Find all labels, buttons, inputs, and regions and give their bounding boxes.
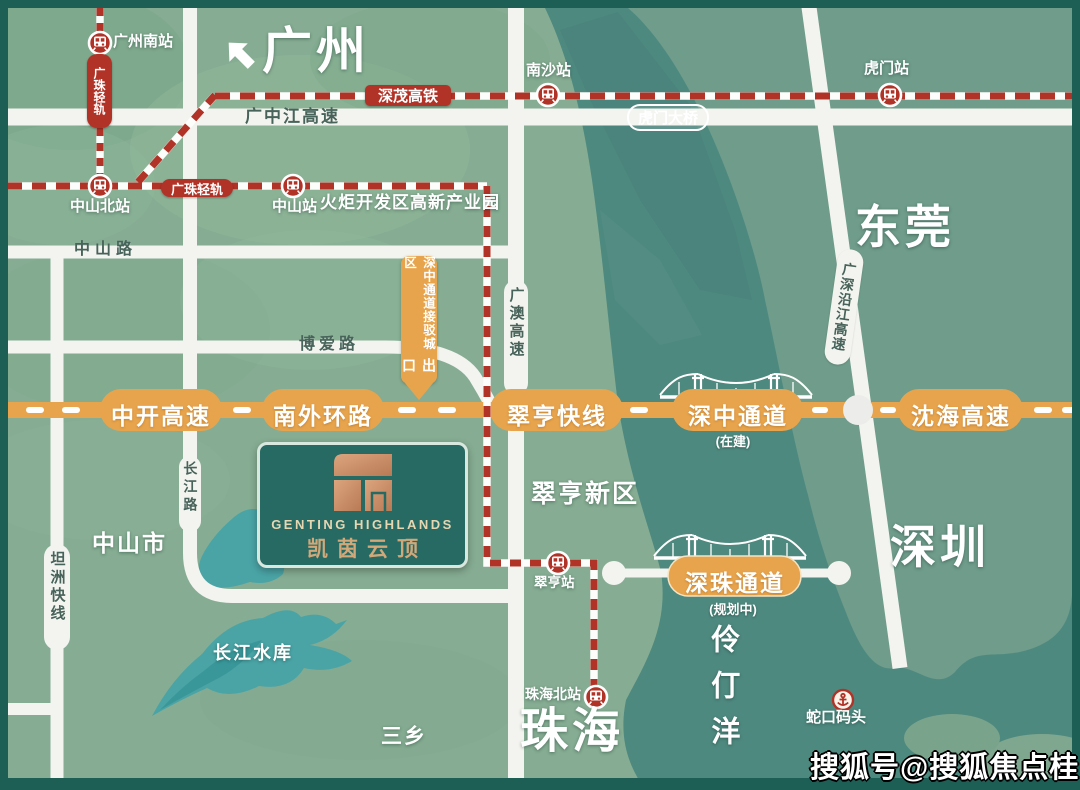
city-label-zhuhai: 珠海 bbox=[520, 706, 624, 759]
station-label-humen: 虎门站 bbox=[864, 61, 909, 78]
shenzhong-exit-banner: 深中通道接驳城区 出口 bbox=[401, 256, 437, 384]
city-label-guangzhou: 广州 bbox=[262, 24, 370, 79]
bar-label-shenzhong-corridor: 深中通道 bbox=[676, 397, 800, 431]
station-label-nansha: 南沙站 bbox=[526, 63, 571, 80]
station-icon-zhongshan-north bbox=[89, 175, 111, 197]
station-icon-zhongshan bbox=[282, 175, 304, 197]
status-shenzhu-planned: (规划中) bbox=[696, 599, 770, 618]
port-label-shekou: 蛇口码头 bbox=[806, 710, 866, 727]
genting-logo-icon bbox=[334, 454, 392, 512]
town-label-sanxiang: 三乡 bbox=[381, 725, 427, 748]
station-label-zhuhai-north: 珠海北站 bbox=[525, 687, 581, 702]
bar-label-zhongkai: 中开高速 bbox=[104, 397, 218, 431]
rail-badge-guangzhu-light-rail-vertical: 广珠轻轨 bbox=[87, 54, 112, 128]
bar-label-shenzhu-corridor: 深珠通道 bbox=[672, 564, 798, 598]
road-label-guangzhongjiang: 广中江高速 bbox=[245, 108, 340, 127]
exit-banner-text: 深中通道接驳城区 bbox=[400, 256, 438, 356]
anchor-icon bbox=[833, 690, 853, 710]
project-name-en: GENTING HIGHLANDS bbox=[271, 517, 454, 532]
transit-location-map: 广州 东莞 深圳 珠海 中山市 三乡 翠亨新区 伶仃洋 火炬开发区高新产业园 长… bbox=[0, 0, 1080, 790]
road-label-tanzhou-express: 坦洲快线 bbox=[48, 551, 65, 623]
station-label-guangzhou-south: 广州南站 bbox=[113, 34, 173, 51]
status-shenzhong-under-construction: (在建) bbox=[703, 431, 763, 450]
watermark: 搜狐号@搜狐焦点桂林站 bbox=[810, 744, 1080, 790]
map-canvas bbox=[0, 0, 1080, 790]
city-label-zhongshan: 中山市 bbox=[92, 531, 167, 556]
bar-label-shenhai: 沈海高速 bbox=[902, 397, 1020, 431]
road-label-humen-bridge: 虎门大桥 bbox=[627, 104, 709, 131]
station-icon-nansha bbox=[537, 84, 559, 106]
sea-label-lingdingyang: 伶仃洋 bbox=[706, 624, 738, 762]
road-label-guangao: 广澳高速 bbox=[507, 287, 524, 359]
rail-badge-shenmao-hsr: 深茂高铁 bbox=[365, 85, 451, 106]
station-icon-cuiheng bbox=[547, 552, 569, 574]
city-label-dongguan: 东莞 bbox=[855, 202, 955, 253]
area-label-torch-park: 火炬开发区高新产业园 bbox=[320, 194, 500, 213]
station-label-zhongshan-north: 中山北站 bbox=[70, 199, 130, 216]
bar-label-cuiheng-line: 翠亨快线 bbox=[494, 397, 620, 431]
station-label-cuiheng: 翠亨站 bbox=[534, 576, 575, 591]
station-icon-guangzhou-south bbox=[89, 32, 111, 54]
station-icon-humen bbox=[879, 84, 901, 106]
interchange-circle bbox=[843, 395, 873, 425]
rail-badge-guangzhu-light-rail: 广珠轻轨 bbox=[161, 179, 233, 197]
lake-label-changjiang-reservoir: 长江水库 bbox=[213, 644, 293, 664]
exit-banner-exit: 出口 bbox=[399, 358, 439, 384]
road-label-changjiang-road: 长江路 bbox=[182, 461, 197, 515]
area-label-cuiheng-new-district: 翠亨新区 bbox=[531, 481, 639, 509]
road-label-zhongshan-road: 中山路 bbox=[74, 241, 137, 259]
road-label-boai-road: 博爱路 bbox=[299, 336, 359, 354]
project-logo-card: GENTING HIGHLANDS 凯茵云顶 bbox=[257, 442, 468, 568]
station-label-zhongshan: 中山站 bbox=[272, 199, 317, 216]
city-label-shenzhen: 深圳 bbox=[890, 522, 990, 573]
exit-banner-arrow-icon bbox=[405, 383, 433, 400]
bar-label-nanwai-ring: 南外环路 bbox=[266, 397, 380, 431]
project-name-cn: 凯茵云顶 bbox=[298, 533, 427, 563]
